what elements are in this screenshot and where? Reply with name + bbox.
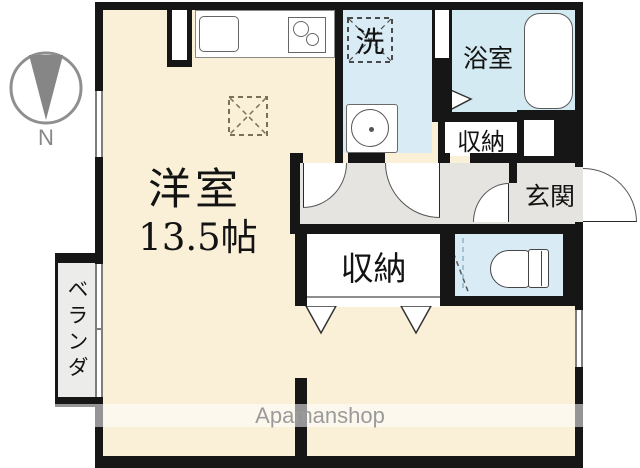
kitchen-sink-icon <box>199 16 239 52</box>
wall-hall-top-c <box>440 153 450 163</box>
toilet-bowl-icon <box>490 250 530 288</box>
toilet-tank-icon <box>528 249 549 288</box>
compass-icon <box>8 50 84 126</box>
wall-hall-top-b <box>348 153 385 163</box>
window-veranda-tick <box>95 328 103 330</box>
bathtub-icon <box>524 13 573 109</box>
closet-folding-door-icon <box>305 306 337 335</box>
wall-entrance-block-slot <box>524 120 554 156</box>
window-left-veranda <box>95 264 103 397</box>
stove-burner-icon <box>306 33 319 46</box>
bathroom-label: 浴室 <box>452 44 524 70</box>
wall-washroom-bath-slot <box>435 8 449 58</box>
wall-toilet-right <box>563 234 575 296</box>
wall-hall-top-d <box>470 153 517 163</box>
wall-kitchen-washroom <box>335 2 343 163</box>
wall-hall-entrance-stub <box>509 163 517 183</box>
wall-outer-right <box>575 2 583 468</box>
wall-outer-bottom <box>95 456 583 468</box>
floor-plan: N 洗 浴室 収納 玄関 収納 <box>0 0 640 468</box>
basin-drain-icon <box>369 127 374 132</box>
lower-closet-label: 収納 <box>307 248 440 284</box>
compass-north-label: N <box>32 126 60 150</box>
watermark-text: Apamanshop <box>0 404 640 427</box>
washer-label: 洗 <box>347 17 393 63</box>
veranda-label: ベランダ <box>60 266 94 394</box>
front-door-swing <box>583 168 637 222</box>
ceiling-hatch-icon <box>228 96 268 136</box>
wall-toilet-left <box>440 234 455 296</box>
wall-toilet-bottom <box>440 296 583 306</box>
upper-closet-label: 収納 <box>445 126 517 152</box>
entrance-doorway-gap <box>575 167 583 222</box>
wall-top-stub-slot <box>172 8 187 60</box>
toilet-tank-line <box>541 251 544 286</box>
wall-hall-bottom <box>290 224 583 234</box>
main-room-name: 洋室 <box>85 163 305 209</box>
window-left-upper <box>95 91 103 157</box>
wall-outer-top <box>95 2 583 10</box>
entrance-label: 玄関 <box>519 182 581 208</box>
main-room-area: 13.5帖 <box>85 213 311 255</box>
window-right <box>575 310 583 367</box>
closet-folding-door-icon <box>400 306 432 335</box>
